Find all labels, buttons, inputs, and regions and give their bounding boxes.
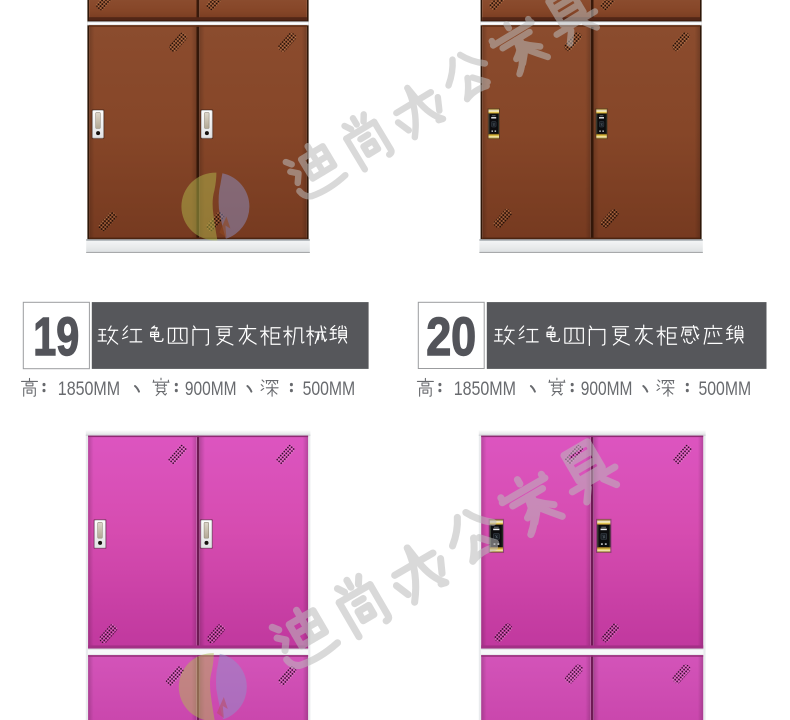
svg-text:500MM: 500MM — [303, 378, 356, 400]
svg-text:500MM: 500MM — [699, 378, 752, 400]
svg-text:900MM: 900MM — [185, 378, 237, 400]
svg-text:1850MM: 1850MM — [58, 378, 120, 400]
svg-text:1850MM: 1850MM — [454, 378, 516, 400]
svg-text:900MM: 900MM — [581, 378, 633, 400]
svg-text:19: 19 — [33, 308, 79, 367]
svg-text:20: 20 — [426, 308, 476, 367]
